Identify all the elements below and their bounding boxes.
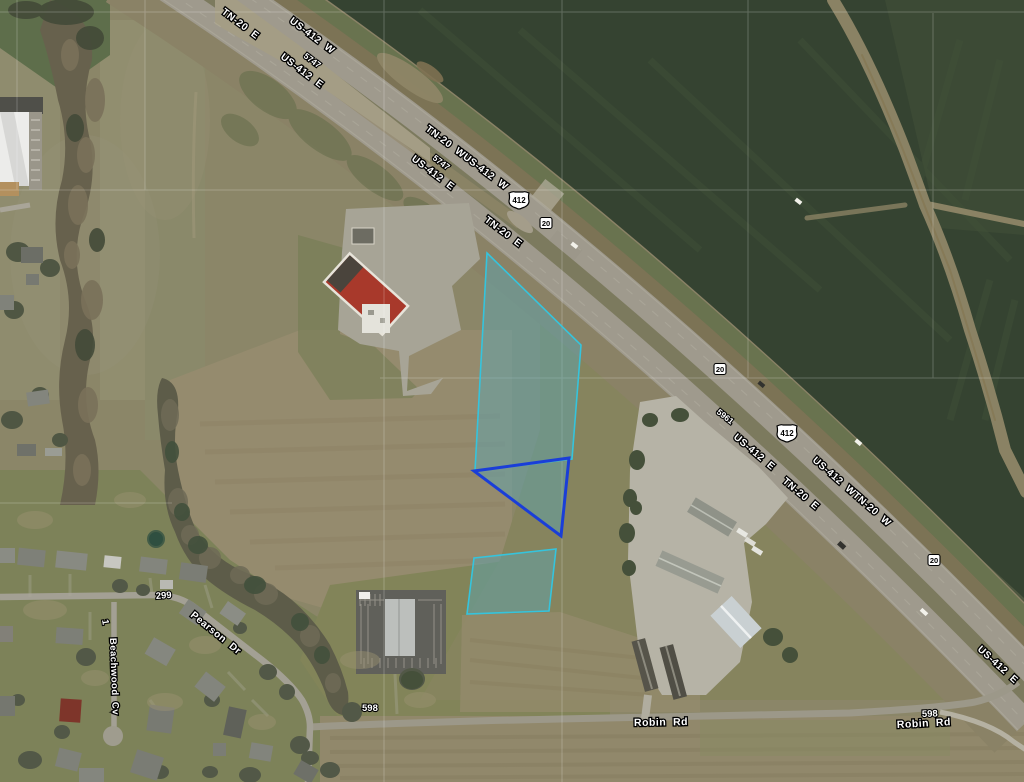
svg-text:412: 412	[512, 196, 526, 205]
svg-text:Robin Rd: Robin Rd	[634, 716, 688, 729]
svg-text:20: 20	[542, 219, 550, 228]
svg-text:598: 598	[362, 703, 378, 714]
svg-text:299: 299	[155, 590, 172, 602]
svg-text:412: 412	[780, 429, 794, 438]
svg-text:20: 20	[716, 365, 724, 374]
svg-text:20: 20	[930, 556, 938, 565]
